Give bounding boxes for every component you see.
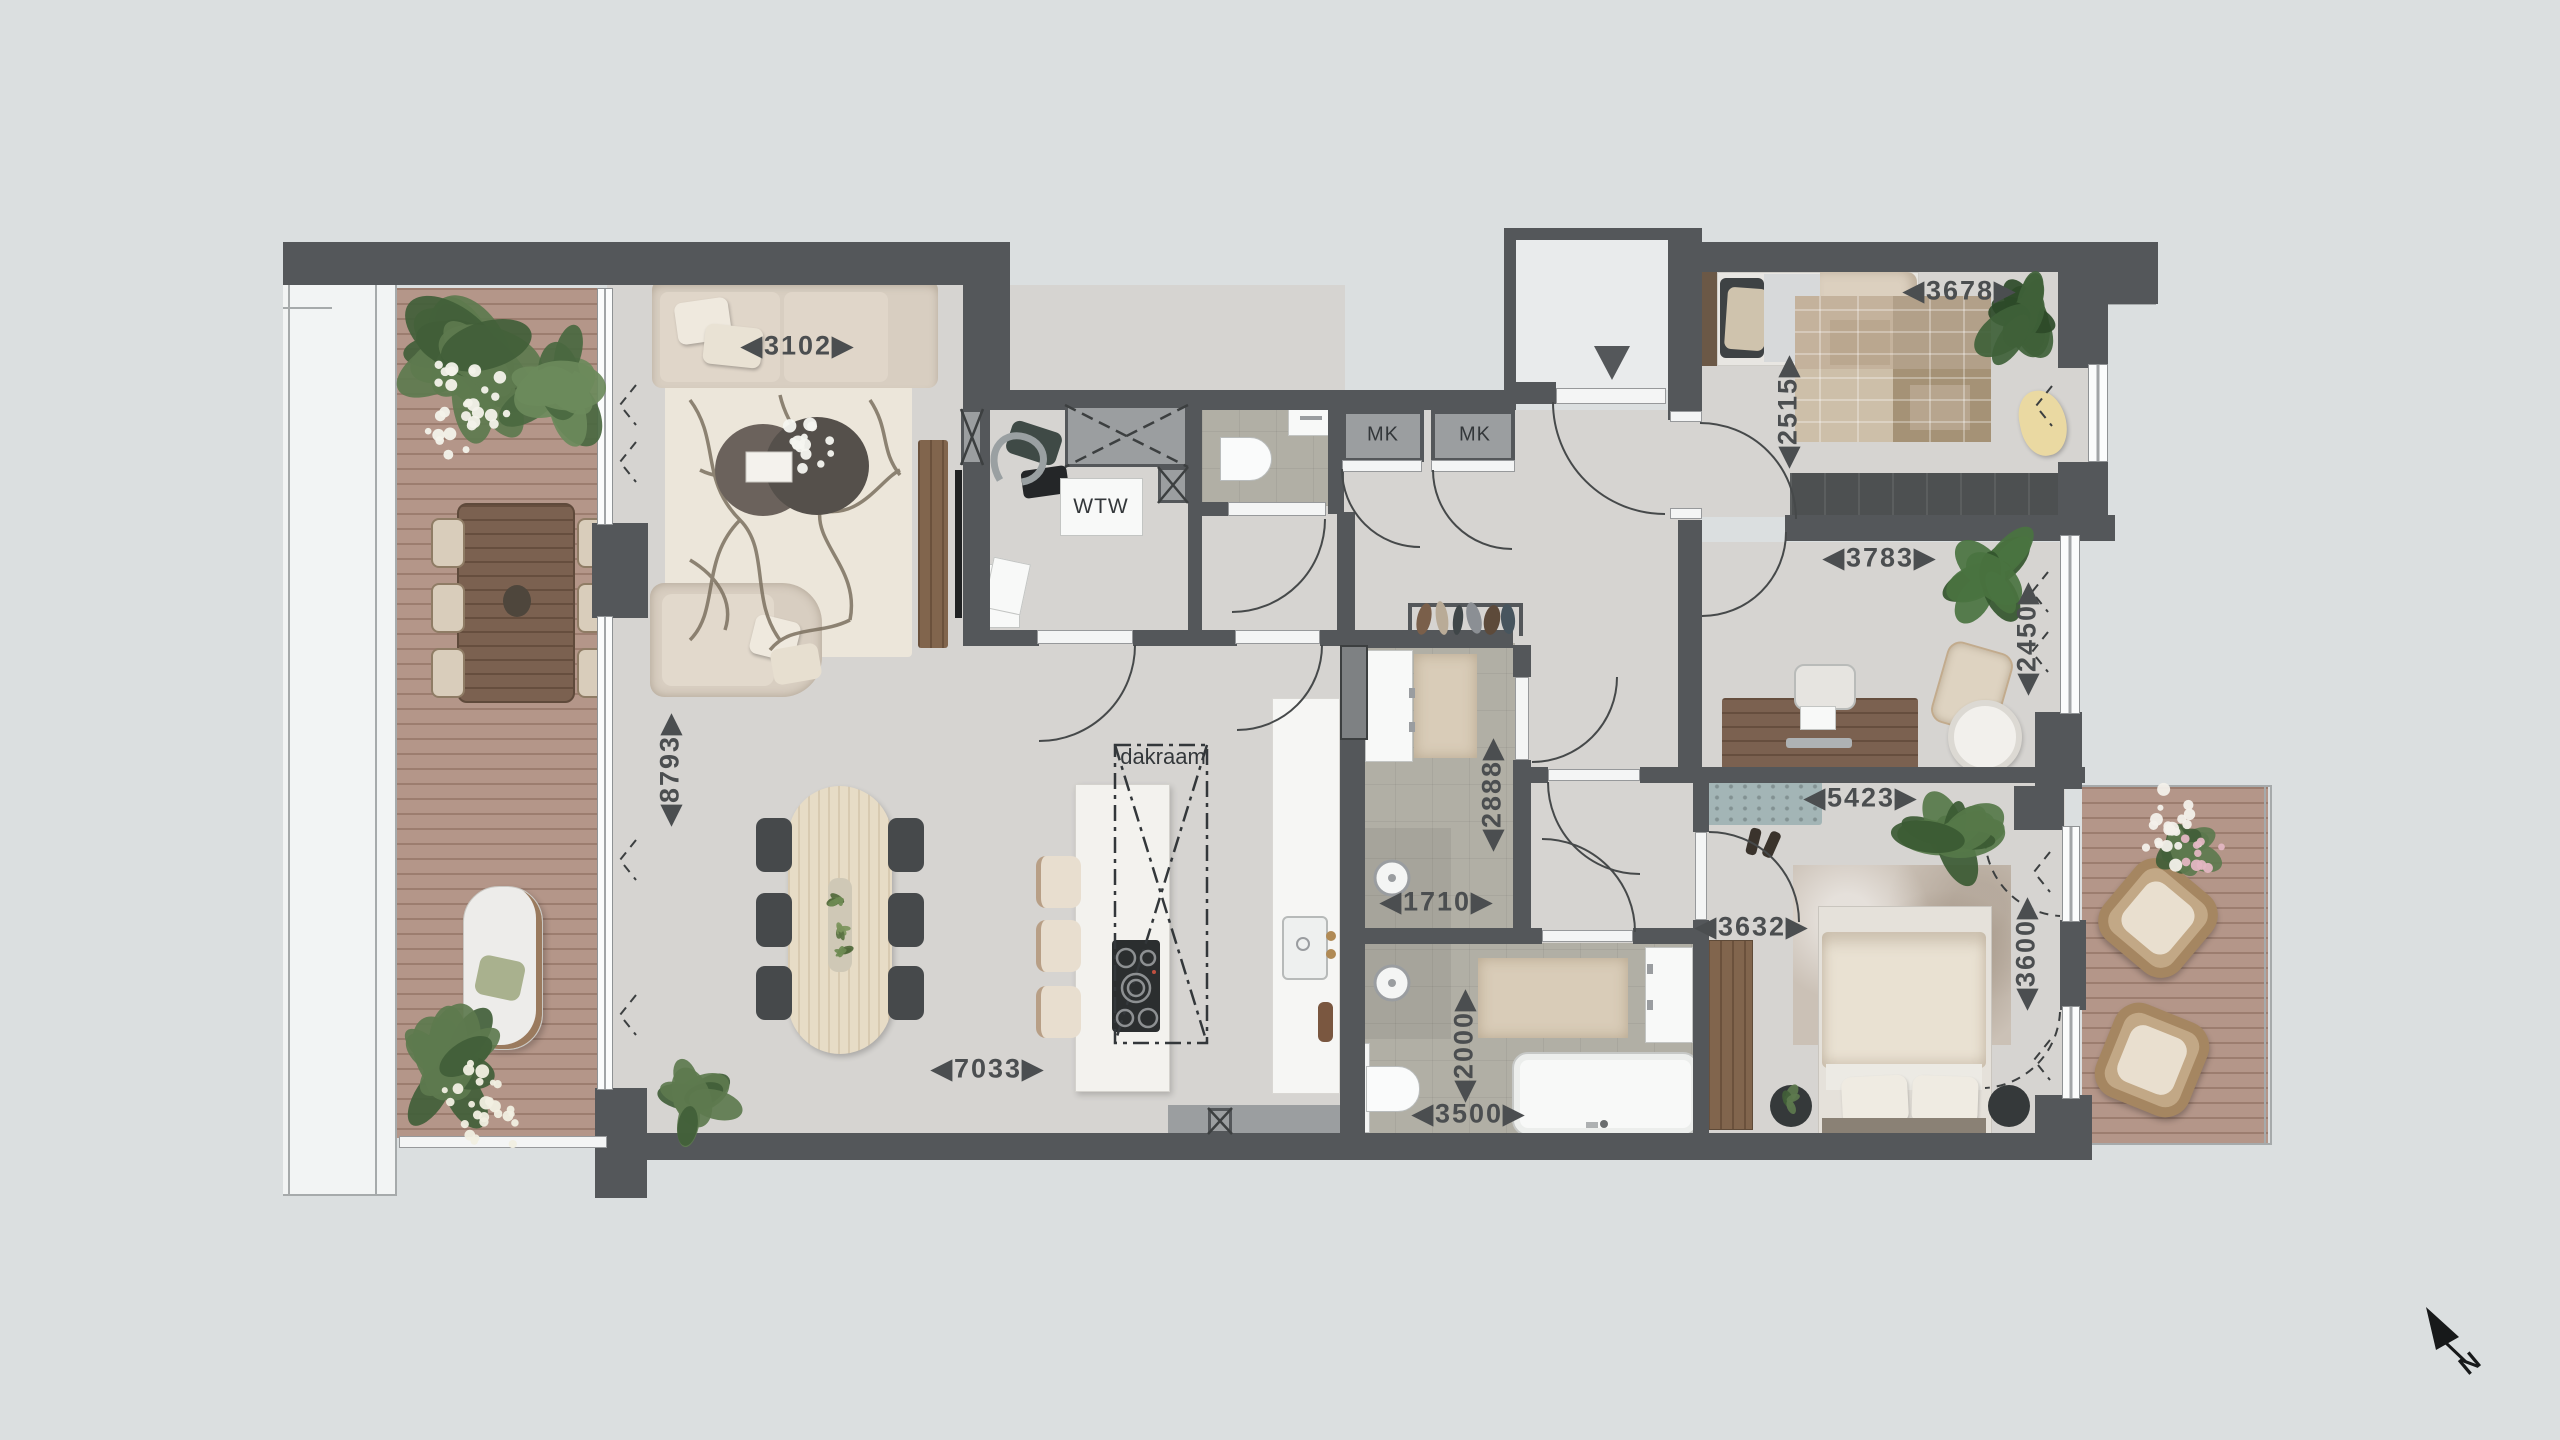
centerpiece-greens [835, 921, 851, 941]
bedroom2-rug [1795, 296, 1991, 442]
centerpiece-greens [825, 891, 845, 908]
centerpiece-greens [834, 944, 855, 958]
dim-open-plan-width: ◀7033▶ [931, 1054, 1045, 1085]
indoor-plant [655, 1056, 746, 1149]
dim-living-width: ◀3102▶ [741, 331, 855, 362]
terrace-plant [398, 997, 507, 1136]
small-plant [1780, 1082, 1801, 1115]
dim-master-depth: ◀3600▶ [2011, 896, 2042, 1010]
wtw-label: WTW [1073, 495, 1128, 519]
dim-master-span: ◀5423▶ [1804, 783, 1918, 814]
dim-bathroom1-depth: ◀2888▶ [1477, 737, 1508, 851]
north-label: N [2453, 1346, 2487, 1381]
dim-study-depth: ◀2450▶ [2012, 581, 2043, 695]
dim-bathroom2-depth: ◀2000▶ [1449, 988, 1480, 1102]
mk-label-right: MK [1459, 424, 1491, 447]
dim-bedroom2-width: ◀3678▶ [1903, 276, 2017, 307]
dim-study-width: ◀3783▶ [1823, 543, 1937, 574]
books [746, 452, 792, 482]
entrance-arrow-icon [1594, 346, 1630, 380]
roof-window-label: dakraam [1120, 744, 1206, 770]
vacuum-hose [994, 436, 1043, 482]
floor-plan: N ◀3102▶ ◀8793▶ ◀7033▶ ◀1710▶ ◀2888▶ ◀20… [0, 0, 2560, 1440]
roof-window-outline [1115, 745, 1207, 1043]
dim-living-length: ◀8793▶ [655, 712, 686, 826]
north-arrow: N [2426, 1307, 2486, 1381]
door-arcs [1039, 402, 1799, 932]
terrace-plant [2149, 821, 2227, 881]
mk-label-left: MK [1367, 424, 1399, 447]
hob-rings [1117, 949, 1157, 1027]
dim-bathroom2-width: ◀3500▶ [1412, 1099, 1526, 1130]
dim-master-width: ◀3632▶ [1695, 912, 1809, 943]
dim-bedroom2-depth: ◀2515▶ [1773, 354, 1804, 468]
dim-bathroom1-width: ◀1710▶ [1380, 887, 1494, 918]
plan-overlay: N [0, 0, 2560, 1440]
coats [1414, 600, 1516, 636]
